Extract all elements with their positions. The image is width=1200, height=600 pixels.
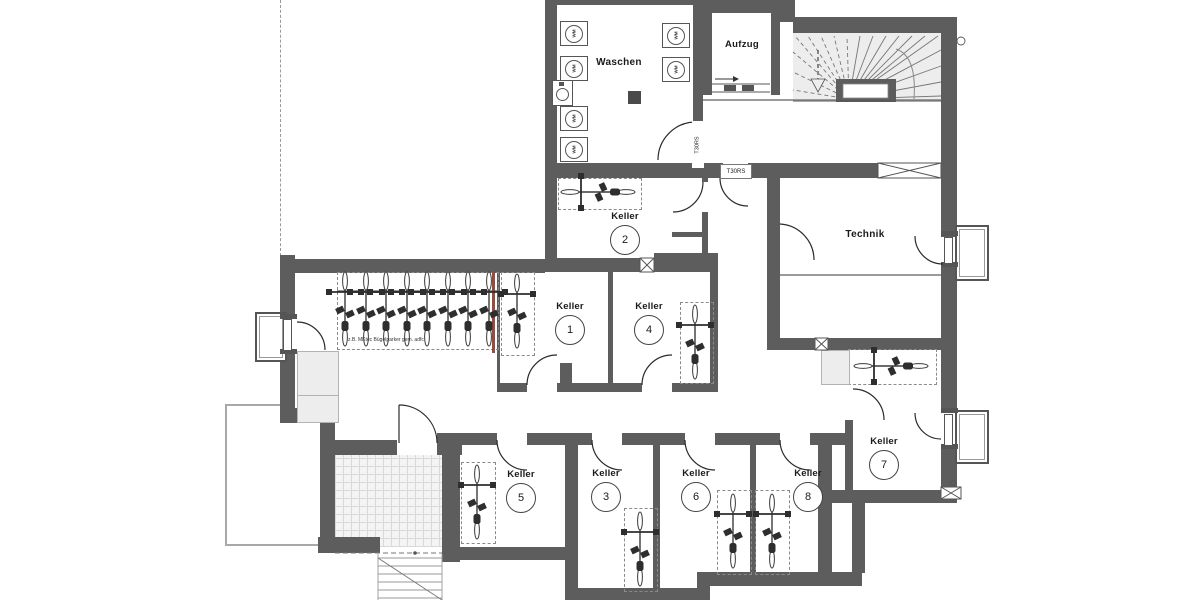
floor-drain-icon (628, 91, 641, 104)
wall-segment (565, 433, 578, 600)
door-arc (915, 236, 943, 264)
washing-machine-icon: WM (560, 137, 588, 162)
wall-segment (497, 383, 527, 392)
wall-segment (527, 433, 592, 445)
bike-parking-zone (558, 178, 642, 210)
elevator-door (712, 76, 770, 92)
room-label-technik: Technik (825, 229, 905, 240)
door-arc (853, 389, 884, 420)
room-label-aufzug: Aufzug (708, 39, 776, 50)
wall-segment (320, 415, 335, 548)
door-arc (642, 355, 672, 385)
washing-machine-icon: WM (662, 57, 690, 82)
wall-segment (767, 170, 780, 350)
wall-segment (545, 163, 693, 178)
washing-machine-icon: WM (560, 56, 588, 81)
storage-alcove (821, 350, 850, 385)
bike-parking-zone (848, 349, 937, 385)
keller-label: Keller (619, 301, 679, 312)
wall-segment (852, 503, 865, 573)
door-arc (497, 440, 527, 470)
wall-segment (693, 0, 703, 122)
door-jamb (941, 231, 958, 236)
light-shaft (955, 225, 989, 281)
door-arc (780, 440, 810, 470)
door-arc (297, 322, 325, 350)
wall-segment (941, 264, 957, 412)
bike-parking-zone (624, 508, 658, 592)
keller-label: Keller (540, 301, 600, 312)
wall-segment (545, 258, 640, 272)
arrow-icon (733, 76, 739, 82)
keller-8-tag: Keller 8 (778, 468, 838, 512)
keller-1-tag: Keller 1 (540, 301, 600, 345)
wall-segment (793, 17, 943, 33)
door-frame (944, 237, 953, 264)
exterior-stairs (378, 554, 442, 600)
room-label-waschen: Waschen (577, 57, 661, 68)
keller-number-circle: 5 (506, 483, 536, 513)
light-shaft (955, 410, 989, 464)
door-jamb (941, 408, 958, 413)
stairwell-floor (793, 33, 941, 101)
keller-3-tag: Keller 3 (576, 468, 636, 512)
wall-segment (318, 537, 380, 553)
door-frame (944, 414, 953, 446)
door-frame (283, 319, 292, 351)
keller-5-tag: Keller 5 (491, 469, 551, 513)
fire-door-label: T30RS (720, 164, 752, 179)
keller-7-tag: Keller 7 (854, 436, 914, 480)
wall-segment (442, 547, 573, 560)
wall-segment (703, 13, 712, 95)
keller-number-circle: 2 (610, 225, 640, 255)
washing-machine-icon: WM (560, 106, 588, 131)
wall-segment (442, 433, 460, 562)
bike-parking-note: z.B. MKtec Bügelparker gem. adfc (348, 337, 498, 343)
keller-number-circle: 1 (555, 315, 585, 345)
wall-segment (545, 0, 557, 272)
door-arc (673, 182, 703, 212)
wall-segment (845, 420, 853, 490)
wall-segment (771, 13, 780, 95)
door-pillar (560, 363, 572, 383)
storage-alcove (297, 351, 339, 397)
door-arc (915, 413, 941, 439)
fire-door-label-vertical: T30RS (692, 121, 704, 168)
wall-segment (832, 490, 957, 503)
keller-label: Keller (778, 468, 838, 479)
keller-number-circle: 4 (634, 315, 664, 345)
keller-label: Keller (854, 436, 914, 447)
wall-segment (280, 259, 545, 273)
exterior-wall-outline (225, 544, 322, 546)
door-arc (780, 224, 814, 260)
keller-label: Keller (666, 468, 726, 479)
washing-machine-icon: WM (662, 23, 690, 48)
floor-edge-line (703, 99, 941, 101)
keller-label: Keller (595, 211, 655, 222)
basement-floor-plan: Waschen Aufzug Technik Keller 1 Keller 2… (0, 0, 1200, 600)
wall-segment (702, 175, 708, 182)
door-arc (720, 178, 748, 206)
wall-segment (545, 0, 695, 5)
bike-parking-zone (501, 272, 535, 356)
washing-machine-icon: WM (560, 21, 588, 46)
keller-number-circle: 3 (591, 482, 621, 512)
keller-2-tag: Keller 2 (595, 211, 655, 255)
floor-edge-line (780, 274, 941, 276)
door-arc (527, 355, 557, 385)
exterior-wall-outline (225, 404, 227, 546)
wall-segment (672, 383, 718, 392)
storage-alcove (297, 395, 339, 423)
bike-parking-zone (680, 302, 714, 384)
door-arc (685, 440, 715, 470)
wall-segment (941, 17, 957, 237)
boundary-dashed-line (280, 0, 281, 256)
wall-segment (557, 383, 642, 392)
tiled-entrance-floor (335, 455, 442, 547)
keller-label: Keller (491, 469, 551, 480)
wall-segment (280, 255, 295, 318)
wall-segment (608, 272, 613, 383)
door-arc (658, 122, 694, 160)
wall-segment (335, 440, 397, 455)
keller-number-circle: 8 (793, 482, 823, 512)
keller-label: Keller (576, 468, 636, 479)
door-arc (592, 440, 622, 470)
door-arc (399, 405, 437, 443)
exterior-wall-outline (225, 404, 282, 406)
wall-segment (672, 232, 705, 237)
keller-number-circle: 7 (869, 450, 899, 480)
wall-segment (460, 433, 497, 445)
wall-segment (715, 433, 780, 445)
sink-icon (552, 80, 573, 106)
keller-4-tag: Keller 4 (619, 301, 679, 345)
keller-number-circle: 6 (681, 482, 711, 512)
wall-segment (654, 253, 718, 272)
keller-6-tag: Keller 6 (666, 468, 726, 512)
